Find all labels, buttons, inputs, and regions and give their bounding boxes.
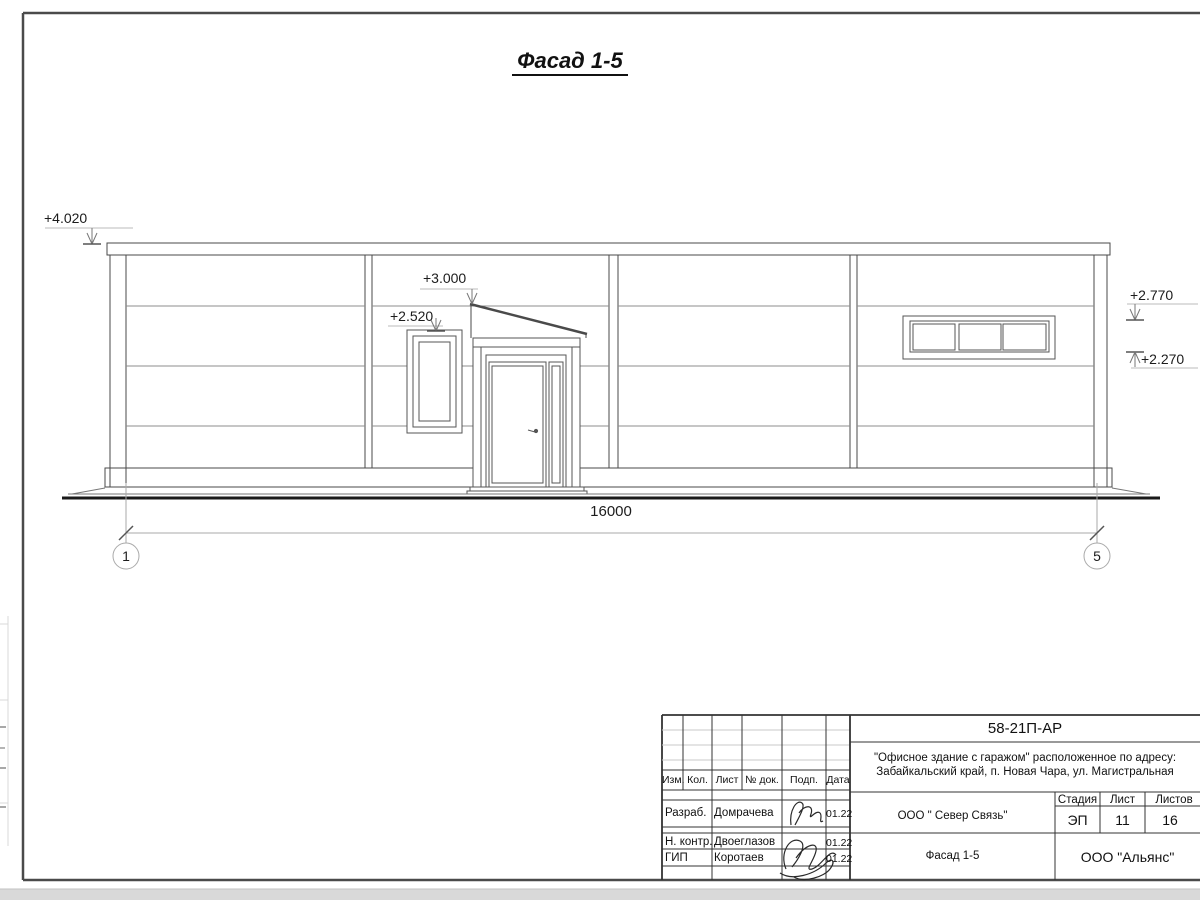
- name-razrab: Домрачева: [714, 807, 774, 820]
- pilaster-left: [110, 255, 126, 487]
- axis-label-1: 1: [113, 548, 139, 564]
- plinth: [105, 468, 1112, 487]
- name-control: Двоеглазов: [714, 836, 775, 849]
- org-name: ООО " Север Связь": [850, 810, 1055, 823]
- dimension-16000: [113, 483, 1110, 569]
- elevation-label-ribbon-top: +2.770: [1130, 287, 1173, 303]
- date-razrab: 01.22: [826, 808, 850, 820]
- dimension-label: 16000: [576, 503, 646, 520]
- elevation-mark-parapet: [45, 228, 133, 244]
- ground-line: [62, 488, 1160, 498]
- role-control: Н. контр.: [665, 836, 712, 849]
- threshold: [470, 487, 584, 491]
- drawing-title: Фасад 1-5: [512, 48, 628, 76]
- axis-label-5: 5: [1084, 548, 1110, 564]
- pilaster-2: [365, 255, 372, 468]
- entrance-door: [467, 338, 587, 494]
- project-address-line2: Забайкальский край, п. Новая Чара, ул. М…: [852, 766, 1198, 779]
- page-edge: [0, 889, 1200, 900]
- stage-header: Стадия: [1055, 794, 1100, 807]
- elevation-mark-canopy: [420, 289, 478, 304]
- parapet: [107, 243, 1110, 255]
- col-header-izm: Изм.: [662, 774, 683, 786]
- doc-code: 58-21П-АР: [850, 720, 1200, 737]
- sheet-header: Лист: [1100, 794, 1145, 807]
- pilaster-4: [850, 255, 857, 468]
- col-header-kol: Кол.: [683, 774, 712, 786]
- building-facade: [105, 243, 1112, 487]
- pilaster-right: [1094, 255, 1107, 487]
- pilaster-3: [609, 255, 618, 468]
- name-gip: Коротаев: [714, 852, 764, 865]
- company-name: ООО "Альянс": [1055, 849, 1200, 865]
- sheets-header: Листов: [1145, 794, 1200, 807]
- drawing-sheet: Фасад 1-5 +4.020 +3.000 +2.520 +2.770 +2…: [0, 0, 1200, 900]
- entrance-canopy: [470, 304, 587, 338]
- entry-window: [407, 330, 462, 433]
- sheet-frame: [23, 13, 1200, 880]
- sheet-value: 11: [1100, 812, 1145, 828]
- col-header-list: Лист: [712, 774, 742, 786]
- col-header-podp: Подп.: [782, 774, 826, 786]
- date-control: 01.22: [826, 837, 850, 849]
- view-title: Фасад 1-5: [850, 850, 1055, 863]
- elevation-label-ribbon-bottom: +2.270: [1141, 351, 1184, 367]
- role-gip: ГИП: [665, 852, 688, 865]
- col-header-doc: № док.: [742, 774, 782, 786]
- stage-value: ЭП: [1055, 812, 1100, 828]
- role-razrab: Разраб.: [665, 807, 706, 820]
- sheets-value: 16: [1145, 812, 1195, 828]
- col-header-data: Дата: [826, 774, 850, 786]
- elevation-label-entry-window: +2.520: [390, 308, 433, 324]
- ribbon-window: [903, 316, 1055, 359]
- elevation-label-canopy: +3.000: [423, 270, 466, 286]
- signature-razrab: [791, 802, 823, 825]
- left-sheet-fragment: [0, 616, 8, 846]
- project-address-line1: "Офисное здание с гаражом" расположенное…: [852, 752, 1198, 765]
- elevation-label-parapet: +4.020: [44, 210, 87, 226]
- date-gip: 01.22: [826, 853, 850, 865]
- elevation-mark-ribbon-top: [1126, 304, 1198, 320]
